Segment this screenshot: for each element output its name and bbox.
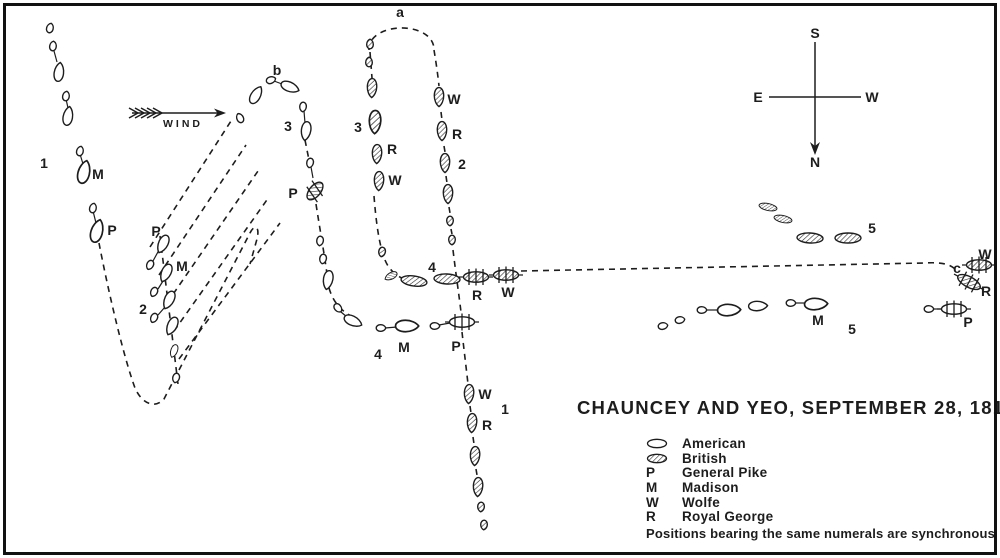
map-title: CHAUNCEY AND YEO, SEPTEMBER 28, 1813 [577, 397, 1000, 419]
british-ship-boat [378, 247, 386, 258]
american-ship-boat [149, 286, 159, 297]
map-label-P: P [288, 185, 297, 201]
american-ship-hull [161, 289, 178, 310]
british-ship-ell [400, 274, 427, 288]
british-ship-hull [369, 110, 381, 134]
british-hull-icon [646, 453, 670, 464]
map-label-2: 2 [458, 156, 466, 172]
track-american-center [305, 140, 356, 318]
legend-row-madison: M Madison [646, 480, 995, 495]
american-ship-boat [675, 316, 686, 324]
british-ship-boat [367, 39, 374, 49]
british-ship-hull [374, 171, 384, 190]
wind-label: WIND [163, 118, 203, 130]
american-ship-hull [300, 121, 312, 141]
compass-south: S [810, 25, 819, 41]
british-ship-boat [447, 216, 454, 226]
american-ship-hull [396, 320, 419, 331]
american-ship-boat [376, 325, 386, 332]
legend-key: M [646, 480, 657, 495]
british-ship-hull [443, 185, 452, 204]
american-ship-hull [88, 218, 105, 243]
legend-row-wolfe: W Wolfe [646, 495, 995, 510]
british-ship-boat [449, 235, 456, 245]
american-ship-masted [445, 314, 479, 331]
american-ship-hull [164, 315, 181, 336]
legend-note: Positions bearing the same numerals are … [646, 526, 995, 541]
map-label-a: a [396, 4, 404, 20]
british-ship-ell [758, 202, 777, 213]
american-ship-boat [786, 300, 796, 307]
american-ship-hull [53, 62, 65, 82]
map-label-1: 1 [40, 155, 48, 171]
american-ship-boat [306, 158, 314, 169]
british-ship-masted [489, 267, 523, 284]
british-ship-hull [437, 122, 446, 141]
american-ship-boat [62, 91, 70, 102]
american-ship-boat [235, 112, 245, 123]
american-ship-boat [172, 373, 181, 384]
british-ship-hull [467, 413, 477, 432]
map-label-c: c [953, 260, 961, 276]
british-ship-hull [372, 144, 382, 163]
legend-row-british: British [646, 451, 995, 466]
american-ship-hull [62, 106, 75, 126]
track-fan-line [179, 223, 280, 359]
map-label-P: P [963, 314, 972, 330]
british-ship-ell [835, 233, 861, 243]
american-ship-hull [169, 344, 180, 359]
legend-label: British [682, 451, 727, 466]
american-ship-hull [76, 159, 93, 184]
legend-key: P [646, 465, 655, 480]
map-label-b: b [273, 62, 282, 78]
american-ship-boat [697, 307, 707, 314]
map-label-W: W [501, 284, 515, 300]
compass-rose: S N E W [753, 25, 879, 170]
legend: American British P General Pike M Madiso… [646, 436, 995, 541]
map-label-P: P [107, 222, 116, 238]
map-label-R: R [387, 141, 397, 157]
map-label-W: W [388, 172, 402, 188]
map-label-3: 3 [284, 118, 292, 134]
map-label-P: P [451, 338, 460, 354]
map-label-5: 5 [848, 321, 856, 337]
map-label-M: M [92, 166, 104, 182]
american-ship-boat [316, 236, 324, 246]
american-ship-hull [247, 84, 265, 105]
map-label-W: W [978, 246, 992, 262]
british-ship-boat [477, 502, 484, 512]
legend-row-pike: P General Pike [646, 465, 995, 480]
american-ship-boat [924, 306, 934, 313]
american-ship-boat [89, 203, 98, 214]
map-label-M: M [812, 312, 824, 328]
american-ship-hull [748, 301, 767, 311]
legend-label: General Pike [682, 465, 767, 480]
map-label-R: R [472, 287, 482, 303]
legend-label: American [682, 436, 746, 451]
british-ship-hull [367, 78, 377, 97]
map-label-R: R [452, 126, 462, 142]
american-ship-boat [299, 102, 306, 112]
british-ship-hull [440, 154, 449, 173]
map-label-R: R [981, 283, 991, 299]
american-ship-boat [46, 23, 55, 34]
compass-north: N [810, 154, 820, 170]
map-label-4: 4 [428, 259, 436, 275]
british-ship-hull [464, 384, 474, 403]
british-ship-hull [434, 88, 443, 107]
map-label-W: W [447, 91, 461, 107]
map-label-M: M [398, 339, 410, 355]
american-ship-hull [322, 270, 335, 290]
track-british-right-leg [434, 50, 477, 475]
map-label-P: P [151, 223, 160, 239]
british-ship-masted [459, 269, 493, 286]
british-ship-ell [773, 214, 792, 225]
wind-arrow: WIND [129, 108, 226, 130]
american-ship-boat [76, 146, 85, 157]
legend-label: Madison [682, 480, 739, 495]
track-fan-line [174, 197, 269, 331]
american-ship-hull [804, 298, 828, 310]
map-label-M: M [176, 258, 188, 274]
american-ship-boat [149, 312, 159, 323]
american-ship-boat [145, 259, 155, 270]
legend-key: W [646, 495, 659, 510]
track-fan-line [167, 171, 258, 303]
map-label-W: W [478, 386, 492, 402]
british-ship-damaged [301, 177, 328, 205]
british-ship-hull [384, 270, 399, 282]
legend-row-american: American [646, 436, 995, 451]
map-label-4: 4 [374, 346, 382, 362]
compass-west: W [865, 89, 879, 105]
track-british-a-loop [369, 28, 434, 50]
map-label-3: 3 [354, 119, 362, 135]
american-ship-hull [342, 313, 363, 330]
track-british-east [521, 263, 957, 271]
british-ship-boat [366, 57, 373, 67]
legend-label: Royal George [682, 509, 773, 524]
british-ship-ell [797, 232, 823, 243]
american-ship-boat [658, 322, 669, 330]
british-ship-boat [480, 520, 487, 530]
american-ship-boat [49, 41, 57, 51]
legend-label: Wolfe [682, 495, 720, 510]
map-label-1: 1 [501, 401, 509, 417]
legend-key: R [646, 509, 656, 524]
map-label-5: 5 [868, 220, 876, 236]
track-fan-line [159, 145, 246, 275]
map-label-R: R [482, 417, 492, 433]
map-labels-layer: abc1MPPM23P3RWWR24RW4MPW1R5M5WRP [40, 4, 992, 433]
american-hull-icon [646, 438, 670, 449]
battle-map: abc1MPPM23P3RWWR24RW4MPW1R5M5WRP S N E W… [0, 0, 1000, 558]
american-ship-hull [280, 79, 301, 95]
legend-row-royal-george: R Royal George [646, 509, 995, 524]
map-label-2: 2 [139, 301, 147, 317]
british-ship-hull [473, 477, 483, 496]
american-ship-hull [717, 304, 741, 316]
compass-east: E [753, 89, 762, 105]
british-ship-hull [470, 446, 480, 465]
american-ship-boat [430, 323, 440, 330]
